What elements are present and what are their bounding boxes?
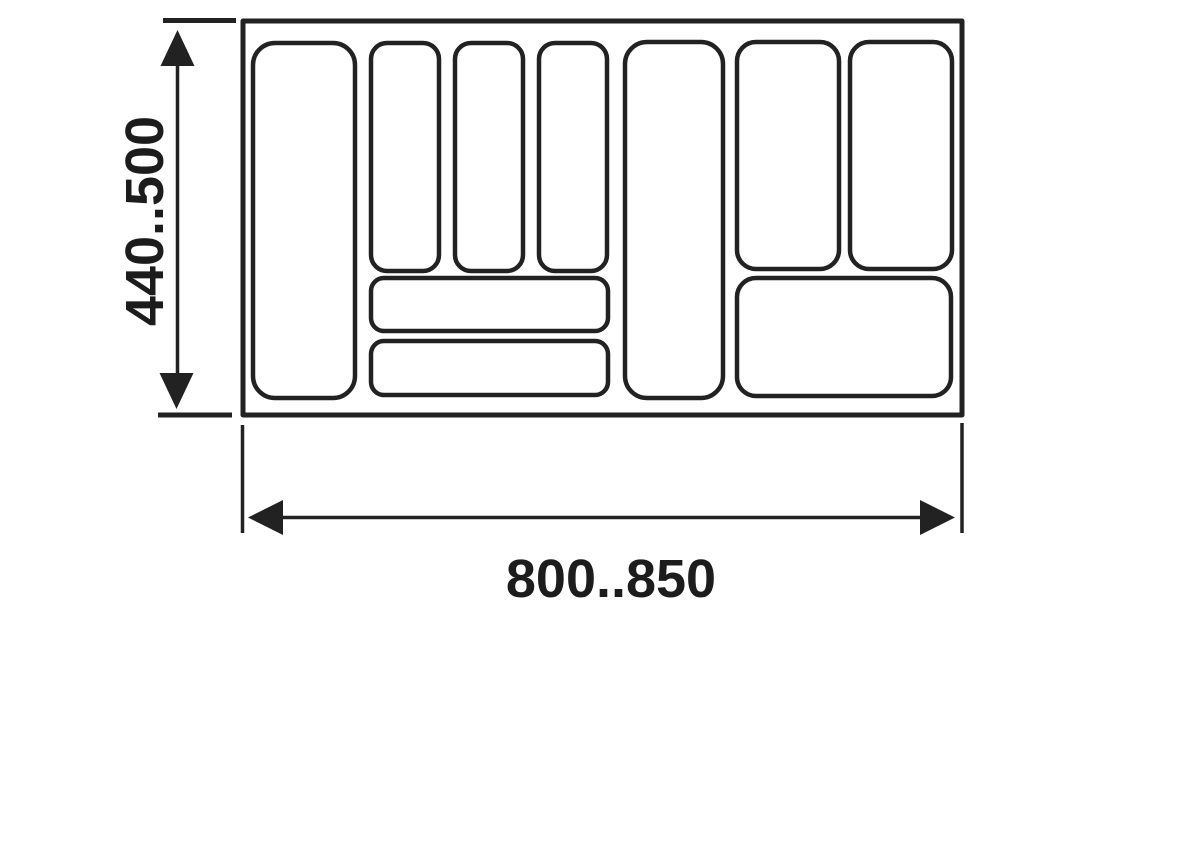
arrow-down-icon <box>160 373 194 409</box>
width-dimension-label: 800..850 <box>506 549 716 609</box>
compartment-middle-tall <box>625 42 723 398</box>
compartment-top-narrow-3 <box>539 43 607 271</box>
compartment-top-narrow-1 <box>371 43 439 271</box>
compartment-top-narrow-2 <box>455 43 523 271</box>
cutlery-tray-drawing: 440..500 800..850 <box>0 0 1200 850</box>
height-dimension-label: 440..500 <box>115 116 175 326</box>
compartment-right-top-2 <box>850 42 952 269</box>
arrow-right-icon <box>920 500 955 535</box>
arrow-left-icon <box>248 500 283 535</box>
width-dimension: 800..850 <box>243 423 963 609</box>
height-dimension: 440..500 <box>115 21 236 416</box>
compartment-right-top-1 <box>737 42 839 269</box>
compartment-left-tall <box>253 43 355 398</box>
arrow-up-icon <box>161 30 195 66</box>
compartment-right-wide <box>737 278 951 396</box>
compartment-shallow-wide-1 <box>371 278 608 331</box>
compartment-shallow-wide-2 <box>371 341 608 395</box>
drawing-canvas: 440..500 800..850 <box>0 0 1200 850</box>
